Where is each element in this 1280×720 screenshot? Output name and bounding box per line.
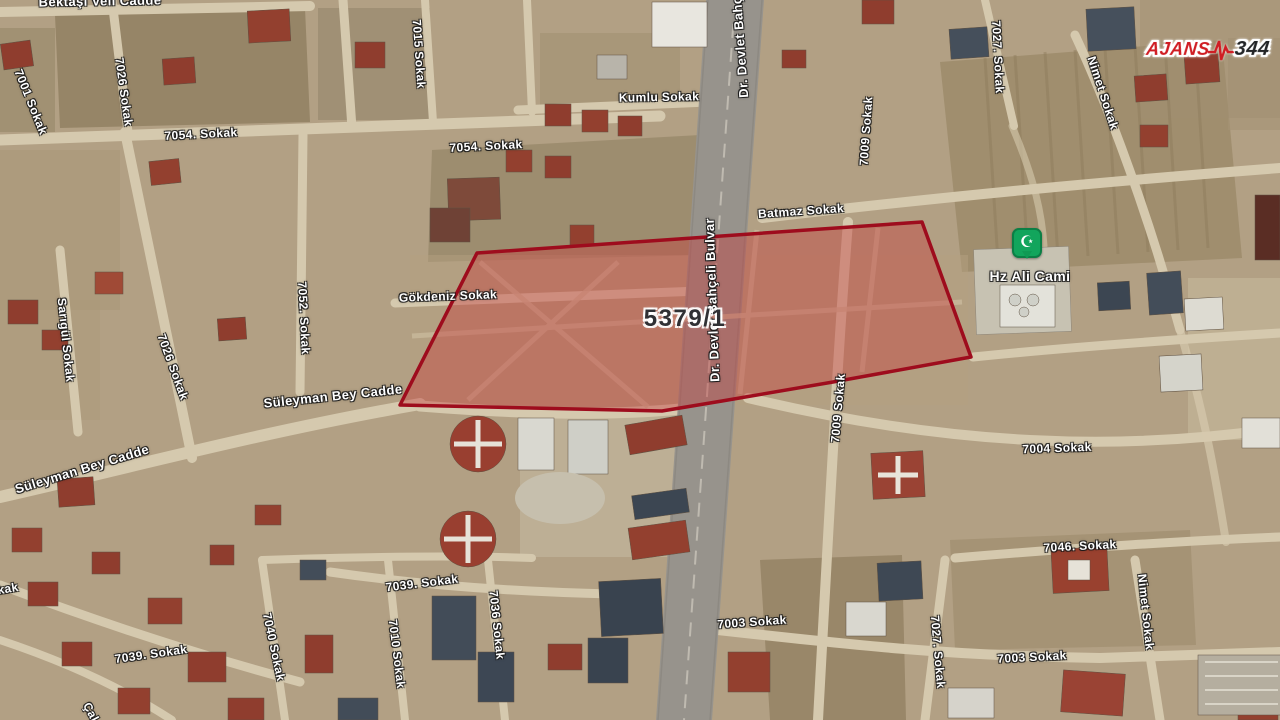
parcel-number-label: 5379/1	[644, 305, 726, 333]
street-label: 7004 Sokak	[1022, 440, 1092, 456]
street-label: Kumlu Sokak	[619, 89, 700, 104]
logo-text-344: 344	[1234, 38, 1271, 61]
mosque-pin-icon[interactable]: ☪	[1012, 228, 1042, 258]
logo-text-ajans: AJANS	[1145, 39, 1211, 60]
crescent-star-icon: ☪	[1020, 235, 1034, 251]
heartbeat-pulse-icon	[1206, 36, 1235, 62]
satellite-imagery	[0, 0, 1280, 720]
poi-label: Hz Ali Cami	[990, 268, 1071, 284]
map-canvas[interactable]: Bektaşı Veli Cadde7001 Sokak7026 Sokak70…	[0, 0, 1280, 720]
ajans344-watermark-logo: AJANS 344	[1145, 36, 1271, 62]
